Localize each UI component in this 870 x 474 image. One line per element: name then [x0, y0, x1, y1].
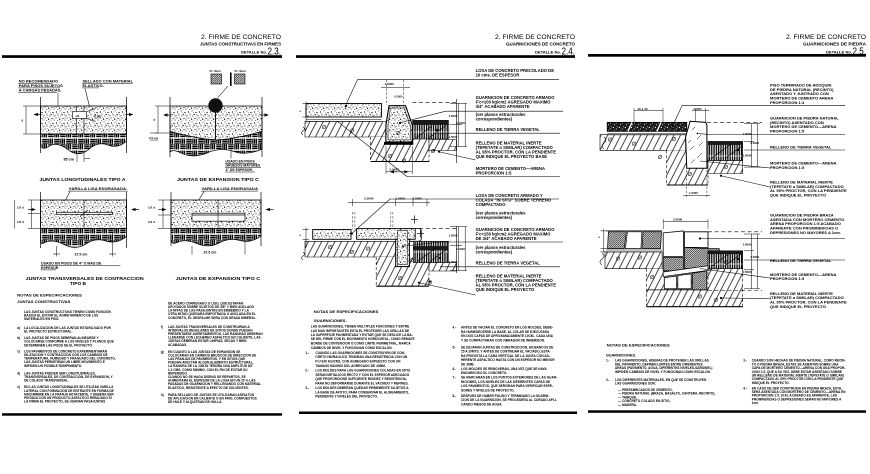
- svg-text:DEPRESIONES NO MAYORES A 1cm.: DEPRESIONES NO MAYORES A 1cm.: [770, 230, 841, 235]
- svg-text:3.0000: 3.0000: [456, 121, 465, 125]
- svg-text:NOTAS DE ESPECIFICACIONES: NOTAS DE ESPECIFICACIONES: [607, 342, 670, 347]
- svg-text:2. FIRME DE CONCRETO: 2. FIRME DE CONCRETO: [786, 34, 866, 41]
- svg-text:2.5000: 2.5000: [364, 197, 374, 201]
- svg-text:correspondientes): correspondientes): [476, 117, 513, 122]
- svg-text:EL PROYECTO ESTRUCTURAL.: EL PROYECTO ESTRUCTURAL.: [24, 330, 73, 334]
- svg-text:IMPIDEN CAMBIOS DE NIVEL Y FUN: IMPIDEN CAMBIOS DE NIVEL Y FUNCIONAN COM…: [615, 370, 711, 374]
- svg-text:1.5000: 1.5000: [743, 132, 752, 136]
- svg-text:3.0000: 3.0000: [456, 247, 465, 251]
- svg-text:1.5000: 1.5000: [449, 260, 458, 264]
- svg-text:3.-: 3.-: [305, 386, 309, 390]
- svg-text:MATERIALES EN PISO.: MATERIALES EN PISO.: [24, 317, 59, 321]
- svg-text:DETALLE No.: DETALLE No.: [241, 50, 267, 54]
- svg-text:1.5000: 1.5000: [743, 154, 752, 158]
- svg-text:RELLENO DE TIERRA VEGETAL: RELLENO DE TIERRA VEGETAL: [770, 258, 832, 263]
- svg-text:ESPESOR: ESPESOR: [41, 266, 59, 270]
- svg-text:1cm.: 1cm.: [752, 401, 759, 405]
- svg-text:e: e: [154, 118, 156, 122]
- svg-text:VARILLA LISA ENGRASADA.: VARILLA LISA ENGRASADA.: [69, 187, 128, 191]
- svg-text:d): d): [17, 371, 20, 375]
- svg-text:2.-: 2.-: [305, 369, 309, 373]
- svg-text:R= 3mm: R= 3mm: [235, 69, 247, 73]
- svg-text:4.-: 4.-: [743, 386, 747, 390]
- svg-text:PROPORCION 1:5: PROPORCION 1:5: [476, 170, 513, 175]
- svg-text:h): h): [161, 393, 164, 397]
- svg-text:37.5 cm: 37.5 cm: [75, 252, 88, 256]
- svg-text:2.5 cm: 2.5 cm: [149, 136, 159, 140]
- svg-text:QUE INDIQUE EL PROYECTO: QUE INDIQUE EL PROYECTO: [476, 287, 535, 292]
- svg-text:1.5000: 1.5000: [689, 191, 698, 195]
- svg-text:1.5000: 1.5000: [396, 197, 406, 201]
- svg-text:JUNTAS DE EXPANSION TIPO C: JUNTAS DE EXPANSION TIPO C: [176, 276, 262, 281]
- svg-text:0.5000: 0.5000: [743, 270, 752, 274]
- svg-text:PARA NO DEFORMARSE DURANTE EL: PARA NO DEFORMARSE DURANTE EL VACIADO Y …: [315, 381, 408, 385]
- svg-text:PROPORCION 1:5: PROPORCION 1:5: [770, 276, 805, 281]
- svg-text:85 cm: 85 cm: [64, 158, 75, 162]
- svg-text:2. FIRME DE CONCRETO: 2. FIRME DE CONCRETO: [495, 34, 575, 41]
- svg-text:g): g): [161, 350, 164, 354]
- svg-text:ACABADAS.: ACABADAS.: [168, 343, 187, 347]
- svg-text:RELLENO DE TIERRA VEGETAL: RELLENO DE TIERRA VEGETAL: [476, 261, 541, 266]
- svg-text:— MADERA.: — MADERA.: [618, 403, 637, 407]
- svg-text:CAMBIOS DE NIVEL Y FUNCIONAN C: CAMBIOS DE NIVEL Y FUNCIONAN COMO ESCALO…: [311, 346, 393, 350]
- svg-text:IMPIDEN UN POSIBLE ROMPIMIENTO: IMPIDEN UN POSIBLE ROMPIMIENTO.: [24, 364, 82, 368]
- svg-text:DETALLE No.: DETALLE No.: [826, 50, 852, 54]
- svg-text:R= 3mm: R= 3mm: [210, 69, 222, 73]
- svg-text:LA FIRMA EL PROYECTO, SE USARA: LA FIRMA EL PROYECTO, SE USARAN PASAJUNT…: [24, 400, 105, 404]
- svg-text:PENDIENTE Y NIVELES DEL PROYEC: PENDIENTE Y NIVELES DEL PROYECTO.: [315, 395, 378, 399]
- svg-text:JUNTAS CONSTRUCTIVAS: JUNTAS CONSTRUCTIVAS: [17, 299, 71, 304]
- svg-text:2.-: 2.-: [606, 378, 610, 382]
- svg-text:e/2: e/2: [76, 114, 80, 118]
- svg-text:37.5 cm: 37.5 cm: [204, 250, 217, 254]
- svg-text:0.2000: 0.2000: [395, 95, 403, 99]
- svg-text:correspondientes): correspondientes): [476, 215, 513, 220]
- svg-text:1/2 d: 1/2 d: [148, 220, 155, 224]
- svg-text:1.-: 1.-: [305, 351, 309, 355]
- svg-text:QUE INDIQUE EL PROYECTO: QUE INDIQUE EL PROYECTO: [770, 193, 826, 198]
- svg-text:TAMANO MAXIMO DEL AGREGADO DE: TAMANO MAXIMO DEL AGREGADO DE 40MM.: [315, 364, 386, 368]
- svg-text:2.0000: 2.0000: [673, 218, 683, 222]
- svg-text:1.5000: 1.5000: [449, 234, 458, 238]
- svg-text:b): b): [17, 336, 20, 340]
- svg-text:DETALLE No.: DETALLE No.: [535, 50, 561, 54]
- svg-text:GUARNICIONES.: GUARNICIONES.: [606, 353, 636, 357]
- svg-text:1.5000: 1.5000: [385, 82, 395, 86]
- svg-text:1/2 d: 1/2 d: [148, 206, 155, 210]
- svg-text:PROPORCION 1:5: PROPORCION 1:5: [770, 129, 805, 134]
- svg-text:TIPO B: TIPO B: [70, 281, 86, 286]
- svg-text:1.5000: 1.5000: [449, 135, 458, 139]
- svg-text:6.-: 6.-: [453, 367, 457, 371]
- svg-text:Y SE COMPACTARAN CON VIBRADOR: Y SE COMPACTARAN CON VIBRADOR DE INMERSI…: [461, 338, 545, 342]
- svg-text:8.-: 8.-: [453, 394, 457, 398]
- svg-text:c): c): [17, 349, 20, 353]
- svg-text:1/2 d: 1/2 d: [17, 220, 24, 224]
- svg-text:4.5000: 4.5000: [750, 255, 759, 259]
- svg-text:COMPACTADO: COMPACTADO: [476, 202, 507, 207]
- svg-text:VARILLA LISA ENGRASADA: VARILLA LISA ENGRASADA: [202, 187, 259, 191]
- svg-text:RELLENO DE TIERRA VEGETAL: RELLENO DE TIERRA VEGETAL: [770, 145, 832, 150]
- svg-text:JUNTAS LONGITUDINALES TIPO A: JUNTAS LONGITUDINALES TIPO A: [40, 177, 127, 182]
- svg-text:4.-: 4.-: [453, 326, 457, 330]
- svg-text:0.5000: 0.5000: [413, 197, 423, 201]
- svg-text:7.-: 7.-: [453, 376, 457, 380]
- svg-text:5.-: 5.-: [453, 345, 457, 349]
- svg-text:2. FIRME DE CONCRETO: 2. FIRME DE CONCRETO: [201, 34, 281, 41]
- svg-text:1.-: 1.-: [606, 359, 610, 363]
- svg-text:3/4" ACABADO APARENTE: 3/4" ACABADO APARENTE: [476, 104, 530, 109]
- svg-text:USADO EN PISOS DE 4" O MAS DE: USADO EN PISOS DE 4" O MAS DE: [41, 261, 102, 265]
- svg-text:PROMINENCIAS O DEPRESIONES SER: PROMINENCIAS O DEPRESIONES SERAN NO MAYO…: [752, 397, 842, 401]
- svg-text:LAS GUARNICIONES SON:: LAS GUARNICIONES SON:: [615, 382, 656, 386]
- svg-text:3.0000: 3.0000: [750, 141, 759, 145]
- svg-text:JUNTAS DE EXPANSION TIPO C: JUNTAS DE EXPANSION TIPO C: [177, 177, 260, 182]
- svg-text:INDIQUE EL PROYECTO.: INDIQUE EL PROYECTO.: [752, 381, 790, 385]
- svg-text:PROPORCION 1:3: PROPORCION 1:3: [770, 100, 805, 105]
- svg-text:QUE INDIQUE EL PROYECTO: QUE INDIQUE EL PROYECTO: [770, 304, 826, 309]
- svg-text:e: e: [22, 119, 24, 123]
- svg-text:0.1000: 0.1000: [694, 107, 702, 111]
- svg-text:1.5000: 1.5000: [449, 114, 458, 118]
- svg-text:4" DE ESPESOR.: 4" DE ESPESOR.: [226, 168, 253, 172]
- svg-text:HERENTE ASFALTICO HASTA CON UN: HERENTE ASFALTICO HASTA CON UN ESPESOR N…: [461, 358, 555, 362]
- svg-text:20 a 40: 20 a 40: [638, 107, 648, 111]
- svg-text:QUE INDIQUE EL PROYECTO BASE: QUE INDIQUE EL PROYECTO BASE: [476, 154, 548, 159]
- svg-text:1.5000: 1.5000: [743, 243, 752, 247]
- svg-text:ELASTICO, RESISTENTE A EFECTO: ELASTICO, RESISTENTE A EFECTO DE SOLVENT…: [168, 386, 249, 390]
- svg-text:DE COLADO TRANSVERSAL.: DE COLADO TRANSVERSAL.: [24, 379, 69, 383]
- svg-text:a): a): [17, 326, 20, 330]
- svg-text:correspondientes): correspondientes): [476, 249, 513, 254]
- svg-text:CANDO RIEGOS DE AGUA.: CANDO RIEGOS DE AGUA.: [461, 403, 502, 407]
- svg-text:CONCRETO, EL DESPALME SERA CON: CONCRETO, EL DESPALME SERA CON GRASA MIN…: [168, 316, 257, 320]
- svg-text:10 cms. DE ESPESOR: 10 cms. DE ESPESOR: [476, 73, 520, 78]
- svg-text:1/2 d: 1/2 d: [17, 206, 24, 210]
- svg-text:DE 3/4" ACABADO APARENTE: DE 3/4" ACABADO APARENTE: [476, 236, 537, 241]
- svg-text:DE 2MM.: DE 2MM.: [461, 362, 474, 366]
- svg-text:DE HULE Y ALQUITRAN DE HULLA.: DE HULE Y ALQUITRAN DE HULLA.: [168, 400, 222, 404]
- svg-text:NOTAS DE ESPECIFICACIONES: NOTAS DE ESPECIFICACIONES: [314, 309, 379, 314]
- svg-text:GUARNICIONES.: GUARNICIONES.: [314, 319, 347, 323]
- svg-text:f): f): [161, 325, 163, 329]
- svg-text:SORES Y NIVELES DE PROYECTO.: SORES Y NIVELES DE PROYECTO.: [461, 388, 515, 392]
- svg-text:DETERMINEN LAS PISOS DE EL PRO: DETERMINEN LAS PISOS DE EL PROYECTO.: [24, 343, 93, 347]
- svg-text:NOTAS DE ESPECIFICACIONES: NOTAS DE ESPECIFICACIONES: [17, 292, 82, 297]
- svg-text:3 cm: 3 cm: [94, 115, 101, 119]
- svg-text:3.-: 3.-: [743, 359, 747, 363]
- svg-text:PROPORCION 1:5: PROPORCION 1:5: [770, 165, 805, 170]
- svg-text:e): e): [17, 385, 20, 389]
- svg-text:ENDURECIDO EL CONCRETO.: ENDURECIDO EL CONCRETO.: [461, 371, 507, 375]
- svg-text:RELLENO DE TIERRA VEGETAL: RELLENO DE TIERRA VEGETAL: [476, 127, 541, 132]
